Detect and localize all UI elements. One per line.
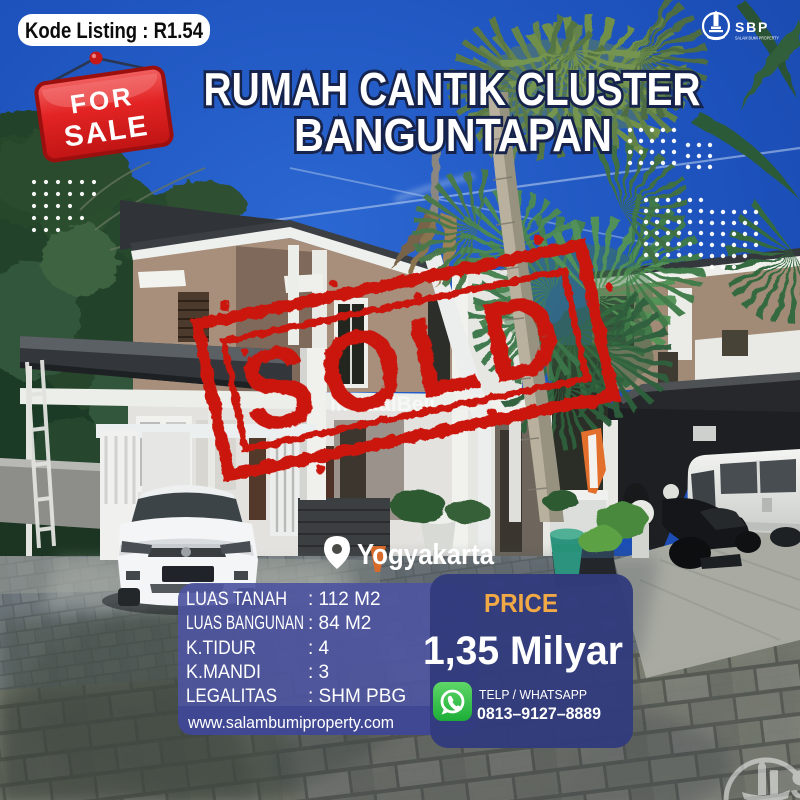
svg-text:SALAM BUMI PROPERTY: SALAM BUMI PROPERTY <box>735 36 779 41</box>
svg-text:1,35 Milyar: 1,35 Milyar <box>423 629 623 673</box>
svg-text:S: S <box>790 763 800 800</box>
svg-text:: 3: : 3 <box>308 662 329 683</box>
svg-text:PRICE: PRICE <box>484 588 558 618</box>
svg-text:SBP: SBP <box>735 19 769 35</box>
svg-text:LEGALITAS: LEGALITAS <box>186 686 277 707</box>
svg-text:RUMAH CANTIK CLUSTER: RUMAH CANTIK CLUSTER <box>204 63 701 115</box>
svg-text:LUAS BANGUNAN: LUAS BANGUNAN <box>186 613 304 634</box>
svg-text:: SHM PBG: : SHM PBG <box>308 686 406 707</box>
svg-text:TELP / WHATSAPP: TELP / WHATSAPP <box>479 687 587 702</box>
svg-text:K.MANDI: K.MANDI <box>186 662 261 683</box>
svg-text:K.TIDUR: K.TIDUR <box>186 638 256 659</box>
svg-text:0813–9127–8889: 0813–9127–8889 <box>477 704 601 723</box>
svg-text:Kode Listing : R1.54: Kode Listing : R1.54 <box>25 18 204 43</box>
svg-text:Yogyakarta: Yogyakarta <box>357 539 495 571</box>
svg-text:BANGUNTAPAN: BANGUNTAPAN <box>294 109 612 161</box>
svg-text:: 112 M2: : 112 M2 <box>308 589 381 610</box>
svg-text:: 4: : 4 <box>308 638 330 659</box>
svg-text:: 84 M2: : 84 M2 <box>308 613 371 634</box>
svg-text:LUAS TANAH: LUAS TANAH <box>186 589 287 610</box>
svg-text:www.salambumiproperty.com: www.salambumiproperty.com <box>187 713 394 732</box>
